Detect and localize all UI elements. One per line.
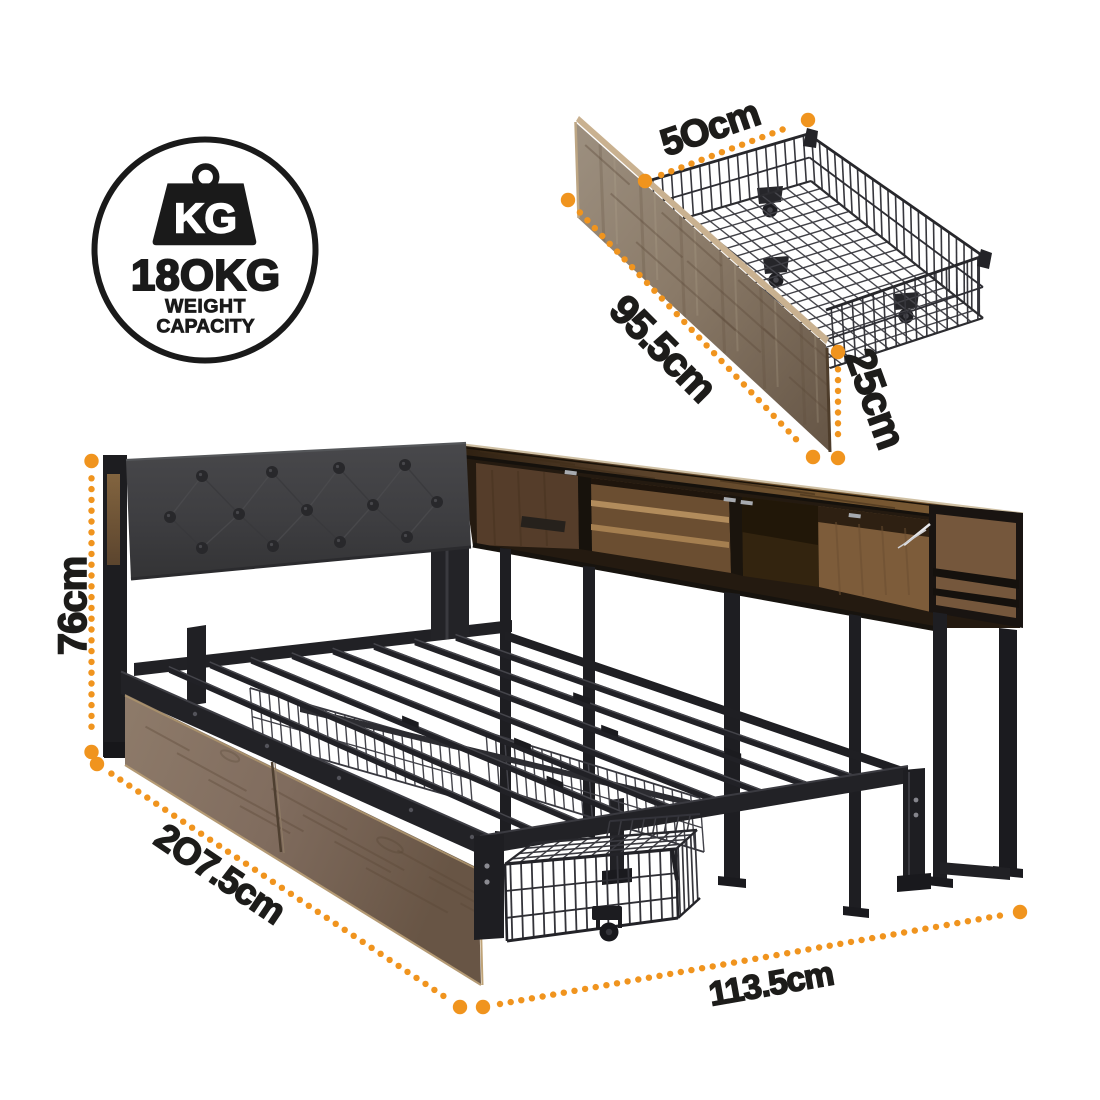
svg-text:KG: KG [174, 195, 237, 242]
svg-text:CAPACITY: CAPACITY [156, 316, 254, 338]
svg-text:WEIGHT: WEIGHT [165, 296, 246, 318]
svg-text:76cm: 76cm [51, 557, 95, 655]
svg-text:18OKG: 18OKG [131, 251, 280, 300]
